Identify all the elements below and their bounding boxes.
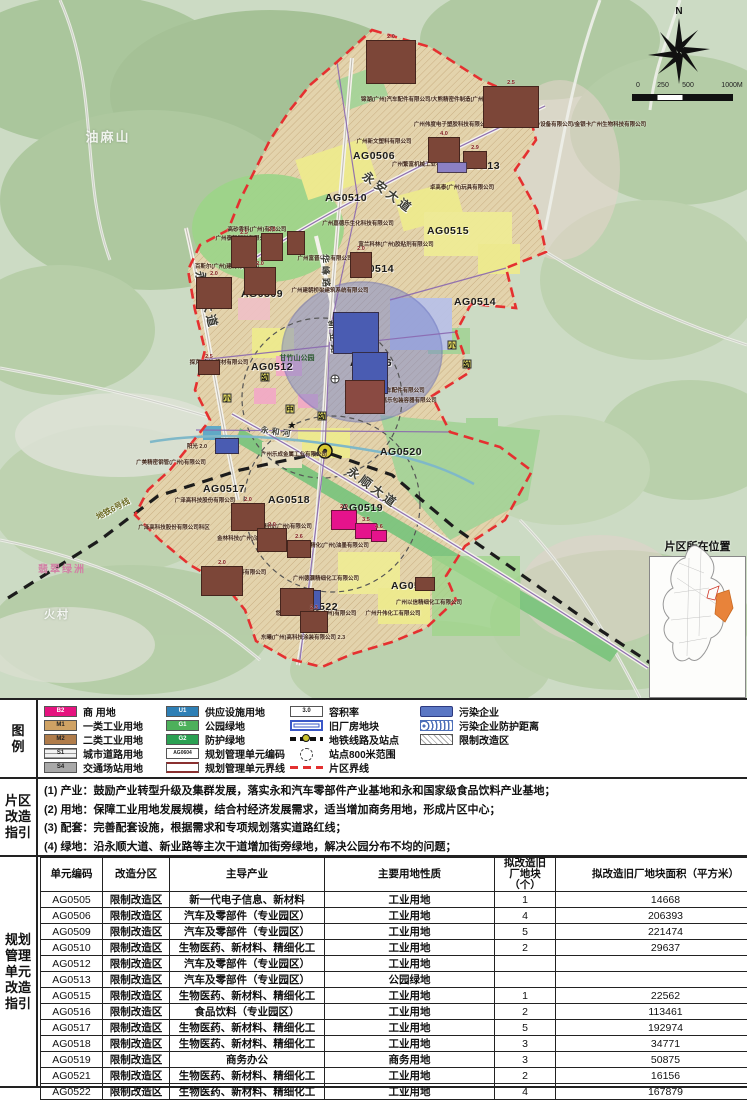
table-header-cell: 单元编码 — [41, 858, 103, 892]
plot-ratio-value: 2.0 — [244, 497, 252, 503]
table-cell: 限制改造区 — [103, 972, 170, 988]
legend-item-label: 片区界线 — [329, 760, 369, 775]
facility-icon: 幼 — [261, 373, 270, 382]
table-cell: 限制改造区 — [103, 1068, 170, 1084]
legend-section: 图例 B2商 用地M1一类工业用地M2二类工业用地S1城市道路用地S4交通场站用… — [0, 698, 747, 777]
table-header-cell: 拟改造旧厂地块面积（平方米） — [556, 858, 747, 892]
table-cell: 限制改造区 — [103, 1036, 170, 1052]
legend-item-label: 容积率 — [329, 704, 359, 719]
district-guideline-section: 片区改造指引 (1) 产业：鼓励产业转型升级及集群发展，落实永和汽车零部件产业基… — [0, 777, 747, 855]
table-cell: 206393 — [556, 908, 747, 924]
legend-col-1: B2商 用地M1一类工业用地M2二类工业用地S1城市道路用地S4交通场站用地 — [44, 704, 143, 775]
old-plot-block — [215, 438, 239, 454]
legend-item: 规划管理单元界线 — [166, 761, 285, 775]
table-cell: 50875 — [556, 1052, 747, 1068]
company-label: 广州建朝桥梁建筑系统有限公司 — [291, 286, 368, 294]
old-plot-block: 2.5 — [198, 360, 220, 375]
company-label: 广泽高科技股份有限公司科区 — [138, 523, 210, 531]
table-row: AG0516限制改造区食品饮料（专业园区）工业用地2113461 — [41, 1004, 747, 1020]
legend-swatch-hatchbox — [420, 734, 453, 745]
legend-swatch-oldplot — [290, 720, 323, 731]
legend-item: U1供应设施用地 — [166, 704, 285, 718]
legend-swatch-unitline — [166, 762, 199, 773]
legend-item: M2二类工业用地 — [44, 732, 143, 746]
table-cell: 4 — [495, 908, 556, 924]
table-row: AG0519限制改造区商务办公商务用地350875 — [41, 1052, 747, 1068]
guideline-line: (4) 绿地：沿永顺大道、新业路等主次干道增加街旁绿地，解决公园分布不均的问题； — [44, 838, 747, 857]
plot-ratio-value: 3.5 — [362, 517, 370, 523]
old-plot-block: 2.0 — [231, 503, 265, 531]
unit-table-title-char: 规划 — [5, 932, 31, 948]
legend-swatch-bluehatch — [420, 720, 453, 731]
table-cell: AG0506 — [41, 908, 103, 924]
table-cell: 16156 — [556, 1068, 747, 1084]
old-plot-block — [437, 162, 467, 173]
table-cell: 生物医药、新材料、精细化工 — [170, 1068, 325, 1084]
table-row: AG0505限制改造区新一代电子信息、新材料工业用地114668 — [41, 892, 747, 908]
guideline-line: (3) 配套：完善配套设施，根据需求和专项规划落实道路红线； — [44, 819, 747, 838]
table-cell: 工业用地 — [325, 1068, 495, 1084]
table-cell: 工业用地 — [325, 956, 495, 972]
unit-table-rows: AG0505限制改造区新一代电子信息、新材料工业用地114668AG0506限制… — [41, 892, 747, 1100]
legend-swatch-code: M2 — [44, 734, 77, 745]
facility-icon: ★ — [288, 422, 297, 431]
table-cell: 192974 — [556, 1020, 747, 1036]
company-label: 广州新文塑料有限公司 — [356, 137, 411, 145]
planning-map: AG0506AG0513AG0510AG0515AG0514AG0509AG05… — [0, 0, 747, 698]
table-cell: AG0521 — [41, 1068, 103, 1084]
legend-item: 片区界线 — [290, 761, 399, 775]
table-row: AG0510限制改造区生物医药、新材料、精细化工工业用地229637 — [41, 940, 747, 956]
legend-swatch-codebox: AG0604 — [166, 748, 199, 759]
place-label: 油麻山 — [85, 127, 130, 146]
table-cell: 限制改造区 — [103, 1020, 170, 1036]
old-plot-block: 2.0 — [201, 566, 243, 596]
scale-bar-segments — [632, 94, 733, 101]
table-cell — [495, 972, 556, 988]
plot-ratio-value: 2.0 — [357, 246, 365, 252]
table-cell: 167879 — [556, 1084, 747, 1100]
road-label: 永顺大道 — [344, 462, 402, 512]
table-cell: 限制改造区 — [103, 1084, 170, 1100]
facility-icon: 小 — [448, 341, 457, 350]
plot-ratio-value: 4.6 — [375, 524, 383, 530]
unit-table-title-char: 管理 — [5, 948, 31, 964]
legend-title-char: 例 — [11, 739, 24, 755]
legend-swatch-metro — [290, 737, 323, 741]
table-cell: AG0518 — [41, 1036, 103, 1052]
legend-item-label: 城市道路用地 — [83, 746, 143, 761]
table-cell: AG0519 — [41, 1052, 103, 1068]
plot-ratio-value: 2.0 — [268, 522, 276, 528]
legend-item-label: 商 用地 — [83, 704, 116, 719]
facility-icon: 中 — [286, 405, 295, 414]
table-row: AG0515限制改造区生物医药、新材料、精细化工工业用地122562 — [41, 988, 747, 1004]
table-cell: 汽车及零部件（专业园区） — [170, 908, 325, 924]
legend-item-label: 站点800米范围 — [329, 746, 396, 761]
compass-rose: N — [648, 6, 710, 84]
table-cell: 221474 — [556, 924, 747, 940]
table-cell: 生物医药、新材料、精细化工 — [170, 1020, 325, 1036]
unit-code-label: AG0512 — [251, 361, 293, 373]
legend-swatch-bluebar — [420, 706, 453, 717]
unit-code-label: AG0520 — [380, 446, 422, 458]
unit-code-label: AG0506 — [353, 150, 395, 162]
old-plot-block — [415, 577, 435, 591]
table-cell: 113461 — [556, 1004, 747, 1020]
old-plot-block: 2.5 — [483, 86, 539, 128]
table-cell: 14668 — [556, 892, 747, 908]
legend-item: 限制改造区 — [420, 732, 539, 746]
table-cell: AG0505 — [41, 892, 103, 908]
legend-item: 地铁线路及站点 — [290, 732, 399, 746]
table-cell: AG0516 — [41, 1004, 103, 1020]
table-cell: 工业用地 — [325, 892, 495, 908]
table-row: AG0518限制改造区生物医药、新材料、精细化工工业用地334771 — [41, 1036, 747, 1052]
legend-item-label: 防护绿地 — [205, 732, 245, 747]
unit-table-title-char: 单元 — [5, 964, 31, 980]
table-cell: 商务办公 — [170, 1052, 325, 1068]
table-cell: AG0509 — [41, 924, 103, 940]
company-label: 广州德灏精细化工有限公司 — [293, 574, 359, 582]
unit-table-head: 单元编码改造分区主导产业主要用地性质拟改造旧 厂地块 （个）拟改造旧厂地块面积（… — [41, 858, 747, 892]
facility-icon: 十 — [331, 375, 340, 384]
table-header-cell: 主要用地性质 — [325, 858, 495, 892]
table-cell: 工业用地 — [325, 908, 495, 924]
unit-code-label: AG0518 — [268, 494, 310, 506]
table-cell — [556, 956, 747, 972]
guideline-body: (1) 产业：鼓励产业转型升级及集群发展，落实永和汽车零部件产业基地和永和国家级… — [36, 779, 747, 855]
old-plot-block: 4.0 — [428, 137, 460, 163]
table-cell: 汽车及零部件（专业园区） — [170, 924, 325, 940]
legend-item: M1一类工业用地 — [44, 718, 143, 732]
table-cell: 4 — [495, 1084, 556, 1100]
plot-ratio-value: 2.9 — [471, 145, 479, 151]
facility-icon: 幼 — [318, 412, 327, 421]
old-plot-block: 2.0 — [196, 277, 232, 309]
table-cell: 22562 — [556, 988, 747, 1004]
road-label: 华峰路 — [319, 254, 334, 291]
old-plot-block: 2.0 — [244, 267, 276, 295]
place-label: 翡翠绿洲 — [38, 561, 86, 576]
legend-swatch-code: S4 — [44, 762, 77, 773]
table-cell — [556, 972, 747, 988]
table-header-cell: 主导产业 — [170, 858, 325, 892]
old-plot-block: 2.0 — [350, 252, 372, 278]
plot-ratio-value: 2.5 — [205, 354, 213, 360]
old-plot-block: 2.0 — [366, 40, 416, 84]
legend-swatch-code: G1 — [166, 720, 199, 731]
legend-item-label: 规划管理单元编码 — [205, 746, 285, 761]
legend-item: G2防护绿地 — [166, 732, 285, 746]
unit-table-section: 规划管理单元改造指引 单元编码改造分区主导产业主要用地性质拟改造旧 厂地块 （个… — [0, 855, 747, 1088]
table-cell: 生物医药、新材料、精细化工 — [170, 1084, 325, 1100]
metro-line-label: 地铁6号线 — [94, 496, 131, 523]
table-row: AG0512限制改造区汽车及零部件（专业园区）工业用地 — [41, 956, 747, 972]
park-label: 甘竹山公园 — [280, 353, 315, 363]
table-cell: AG0515 — [41, 988, 103, 1004]
table-cell: AG0512 — [41, 956, 103, 972]
plot-ratio-value: 2.3 — [310, 605, 318, 611]
table-cell: 2 — [495, 1004, 556, 1020]
plot-ratio-value: 4.0 — [440, 131, 448, 137]
unit-code-label: AG0515 — [427, 225, 469, 237]
metro-station-dot — [302, 734, 310, 742]
guideline-side-label: 片区改造指引 — [0, 779, 36, 855]
company-label: 东曦(广州)高科技涂装有限公司 2.3 — [261, 633, 345, 641]
table-cell: 汽车及零部件（专业园区） — [170, 956, 325, 972]
table-row: AG0521限制改造区生物医药、新材料、精细化工工业用地216156 — [41, 1068, 747, 1084]
table-cell: 生物医药、新材料、精细化工 — [170, 1036, 325, 1052]
scale-tick-label: 250 — [657, 82, 669, 89]
legend-item-label: 规划管理单元界线 — [205, 760, 285, 775]
table-cell: 1 — [495, 988, 556, 1004]
table-cell: 商务用地 — [325, 1052, 495, 1068]
table-cell: AG0522 — [41, 1084, 103, 1100]
table-cell: 3 — [495, 1036, 556, 1052]
table-cell: 限制改造区 — [103, 908, 170, 924]
legend-title-char: 图 — [11, 723, 24, 739]
plot-ratio-value: 2.0 — [387, 34, 395, 40]
unit-table-title-char: 改造 — [5, 980, 31, 996]
old-plot-block: 2.0 — [257, 528, 287, 552]
legend-swatch-code: G2 — [166, 734, 199, 745]
legend-item-label: 供应设施用地 — [205, 704, 265, 719]
legend-item: 3.0容积率 — [290, 704, 399, 718]
table-cell: AG0510 — [41, 940, 103, 956]
legend-swatch-code: M1 — [44, 720, 77, 731]
table-cell: 34771 — [556, 1036, 747, 1052]
legend-item-label: 一类工业用地 — [83, 718, 143, 733]
table-cell: 1 — [495, 892, 556, 908]
company-label: 富兰科林(广州)胶粘剂有限公司 — [358, 240, 433, 248]
scale-tick-label: 1000M — [721, 82, 742, 89]
table-row: AG0522限制改造区生物医药、新材料、精细化工工业用地4167879 — [41, 1084, 747, 1100]
compass-star-icon — [648, 18, 710, 84]
unit-table-side-label: 规划管理单元改造指引 — [0, 857, 36, 1086]
old-plot-block: 2.5 — [261, 233, 283, 261]
table-cell: 工业用地 — [325, 1020, 495, 1036]
legend-item-label: 污染企业 — [459, 704, 499, 719]
table-cell: 2 — [495, 1068, 556, 1084]
company-label: 阳光 2.0 — [187, 442, 207, 450]
table-cell: 生物医药、新材料、精细化工 — [170, 940, 325, 956]
table-cell: 29637 — [556, 940, 747, 956]
table-row: AG0513限制改造区汽车及零部件（专业园区）公园绿地 — [41, 972, 747, 988]
legend-item-label: 交通场站用地 — [83, 760, 143, 775]
legend-item-label: 二类工业用地 — [83, 732, 143, 747]
table-cell: 工业用地 — [325, 924, 495, 940]
unit-code-label: AG0517 — [203, 483, 245, 495]
legend-swatch-code: S1 — [44, 748, 77, 759]
table-row: AG0509限制改造区汽车及零部件（专业园区）工业用地5221474 — [41, 924, 747, 940]
table-header-cell: 改造分区 — [103, 858, 170, 892]
company-label: 卓高泰(广州)玩具有限公司 — [430, 183, 494, 191]
table-cell: AG0517 — [41, 1020, 103, 1036]
table-cell: 工业用地 — [325, 1084, 495, 1100]
old-plot-block: 2.0 — [331, 510, 357, 530]
plot-ratio-value: 2.0 — [218, 560, 226, 566]
inset-box — [649, 556, 746, 698]
legend-item-label: 地铁线路及站点 — [329, 732, 399, 747]
old-plot-block — [333, 312, 379, 354]
table-cell: 限制改造区 — [103, 1004, 170, 1020]
facility-icon: 小 — [223, 394, 232, 403]
table-cell: 限制改造区 — [103, 1052, 170, 1068]
scale-tick-label: 0 — [636, 82, 640, 89]
legend-side-label: 图例 — [0, 700, 36, 777]
legend-item: G1公园绿地 — [166, 718, 285, 732]
table-header-cell: 拟改造旧 厂地块 （个） — [495, 858, 556, 892]
company-label: 广州嘉德乐生化科技有限公司 — [322, 219, 394, 227]
guideline-title-char: 改造 — [5, 809, 31, 825]
old-plot-block: 4.6 — [371, 530, 387, 542]
dashed-circle — [300, 748, 313, 761]
old-plot-block: 2.6 — [287, 540, 311, 558]
compass-north-label: N — [675, 6, 682, 17]
legend-swatch-circledash — [290, 748, 323, 759]
table-cell: 工业用地 — [325, 1004, 495, 1020]
plot-ratio-value: 2.5 — [507, 80, 515, 86]
map-labels-layer: AG0506AG0513AG0510AG0515AG0514AG0509AG05… — [0, 0, 747, 698]
legend-item: AG0604规划管理单元编码 — [166, 747, 285, 761]
table-cell: 5 — [495, 1020, 556, 1036]
facility-icon: 幼 — [463, 360, 472, 369]
old-plot-block — [287, 231, 305, 255]
legend-swatch-farbox: 3.0 — [290, 706, 323, 717]
legend-item: 站点800米范围 — [290, 747, 399, 761]
inset-district-map — [649, 538, 744, 678]
table-cell — [495, 956, 556, 972]
guideline-title-char: 片区 — [5, 793, 31, 809]
table-cell: 3 — [495, 1052, 556, 1068]
table-cell: 汽车及零部件（专业园区） — [170, 972, 325, 988]
table-cell: 限制改造区 — [103, 924, 170, 940]
legend-swatch-code: B2 — [44, 706, 77, 717]
table-cell: 限制改造区 — [103, 940, 170, 956]
company-label: 广美精密钢管(广州)有限公司 — [136, 458, 206, 466]
guideline-line: (2) 用地：保障工业用地发展规模，结合村经济发展需求，适当增加商务用地，形成片… — [44, 801, 747, 820]
guideline-line: (1) 产业：鼓励产业转型升级及集群发展，落实永和汽车零部件产业基地和永和国家级… — [44, 782, 747, 801]
place-label: 火村 — [44, 606, 70, 622]
road-label: 永安大道 — [359, 167, 417, 217]
table-cell: 公园绿地 — [325, 972, 495, 988]
table-cell: AG0513 — [41, 972, 103, 988]
table-row: AG0506限制改造区汽车及零部件（专业园区）工业用地4206393 — [41, 908, 747, 924]
unit-renewal-table: 单元编码改造分区主导产业主要用地性质拟改造旧 厂地块 （个）拟改造旧厂地块面积（… — [40, 857, 747, 1100]
legend-item: B2商 用地 — [44, 704, 143, 718]
company-label: 广州乐成金属工业有限公司 — [261, 450, 327, 458]
scale-bar: 02505001000M — [626, 82, 738, 102]
company-label: 广州以信精细化工有限公司 — [396, 598, 462, 606]
plot-ratio-value: 2.0 — [256, 261, 264, 267]
plot-ratio-value: 2.5 — [240, 230, 248, 236]
legend-item: S4交通场站用地 — [44, 761, 143, 775]
company-label: 广泽高科技股份有限公司 — [175, 496, 236, 504]
legend-item-label: 旧厂房地块 — [329, 718, 379, 733]
legend-item-label: 污染企业防护距离 — [459, 718, 539, 733]
table-row: AG0517限制改造区生物医药、新材料、精细化工工业用地5192974 — [41, 1020, 747, 1036]
company-label: 广州升伟化工有限公司 — [365, 609, 420, 617]
legend-item: 污染企业 — [420, 704, 539, 718]
table-cell: 新一代电子信息、新材料 — [170, 892, 325, 908]
table-cell: 5 — [495, 924, 556, 940]
unit-table-body: 单元编码改造分区主导产业主要用地性质拟改造旧 厂地块 （个）拟改造旧厂地块面积（… — [36, 857, 747, 1086]
legend-item: 旧厂房地块 — [290, 718, 399, 732]
company-label: 高砂香料(广州)有限公司 — [228, 225, 287, 233]
legend-swatch-reddash — [290, 766, 323, 769]
legend-body: B2商 用地M1一类工业用地M2二类工业用地S1城市道路用地S4交通场站用地 U… — [36, 700, 747, 777]
table-cell: 食品饮料（专业园区） — [170, 1004, 325, 1020]
old-plot-block: 2.5 — [231, 236, 257, 268]
company-label: 广州富晋兴业有限公司 — [297, 254, 352, 262]
legend-item: 污染企业防护距离 — [420, 718, 539, 732]
old-plot-block: 2.3 — [300, 611, 328, 633]
table-cell: 限制改造区 — [103, 892, 170, 908]
unit-table-title-char: 指引 — [5, 996, 31, 1012]
plot-ratio-value: 2.5 — [268, 227, 276, 233]
legend-col-2: U1供应设施用地G1公园绿地G2防护绿地AG0604规划管理单元编码规划管理单元… — [166, 704, 285, 775]
legend-swatch-code: U1 — [166, 706, 199, 717]
table-cell: 工业用地 — [325, 940, 495, 956]
table-cell: 限制改造区 — [103, 956, 170, 972]
guideline-title-char: 指引 — [5, 825, 31, 841]
unit-table-header-row: 单元编码改造分区主导产业主要用地性质拟改造旧 厂地块 （个）拟改造旧厂地块面积（… — [41, 858, 747, 892]
plot-ratio-value: 2.0 — [210, 271, 218, 277]
unit-code-label: AG0510 — [325, 192, 367, 204]
legend-col-4: 污染企业污染企业防护距离限制改造区 — [420, 704, 539, 747]
old-plot-block — [345, 380, 385, 414]
plot-ratio-value: 2.0 — [340, 504, 348, 510]
location-inset: 片区所在位置 — [649, 538, 746, 696]
plot-ratio-value: 2.6 — [295, 534, 303, 540]
table-cell: 生物医药、新材料、精细化工 — [170, 988, 325, 1004]
scale-tick-label: 500 — [682, 82, 694, 89]
legend-item-label: 限制改造区 — [459, 732, 509, 747]
legend-col-3: 3.0容积率旧厂房地块地铁线路及站点站点800米范围片区界线 — [290, 704, 399, 775]
legend-item: S1城市道路用地 — [44, 747, 143, 761]
table-cell: 工业用地 — [325, 988, 495, 1004]
table-cell: 工业用地 — [325, 1036, 495, 1052]
legend-item-label: 公园绿地 — [205, 718, 245, 733]
unit-code-label: AG0514 — [454, 296, 496, 308]
table-cell: 限制改造区 — [103, 988, 170, 1004]
table-cell: 2 — [495, 940, 556, 956]
